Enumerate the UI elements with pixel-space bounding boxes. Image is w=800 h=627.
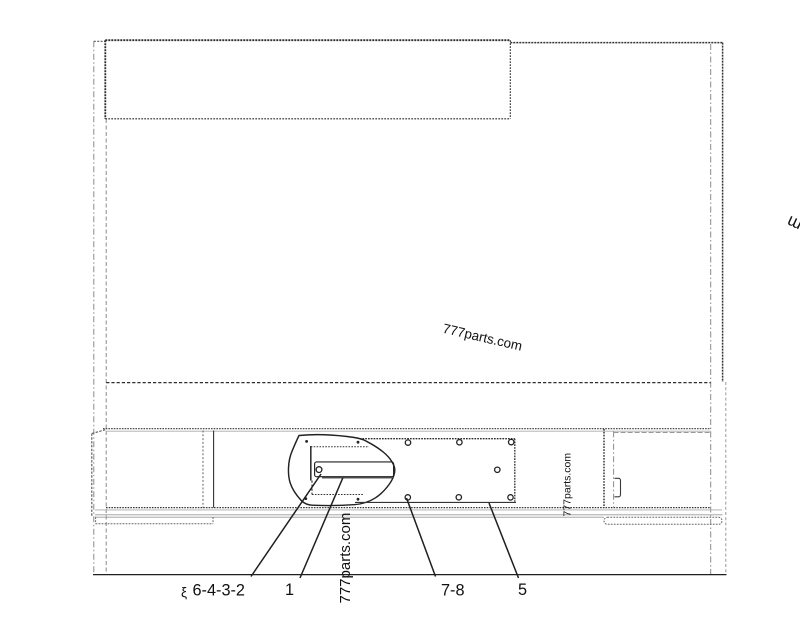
svg-text:777parts.com: 777parts.com — [337, 513, 354, 604]
svg-text:ξ: ξ — [181, 585, 187, 600]
svg-text:777parts.com: 777parts.com — [441, 321, 523, 354]
svg-text:6-4-3-2: 6-4-3-2 — [193, 582, 246, 600]
svg-text:m: m — [784, 212, 800, 235]
svg-text:1: 1 — [285, 581, 294, 599]
svg-text:777parts.com: 777parts.com — [562, 453, 574, 517]
svg-text:7-8: 7-8 — [441, 582, 465, 600]
svg-text:5: 5 — [518, 581, 527, 599]
